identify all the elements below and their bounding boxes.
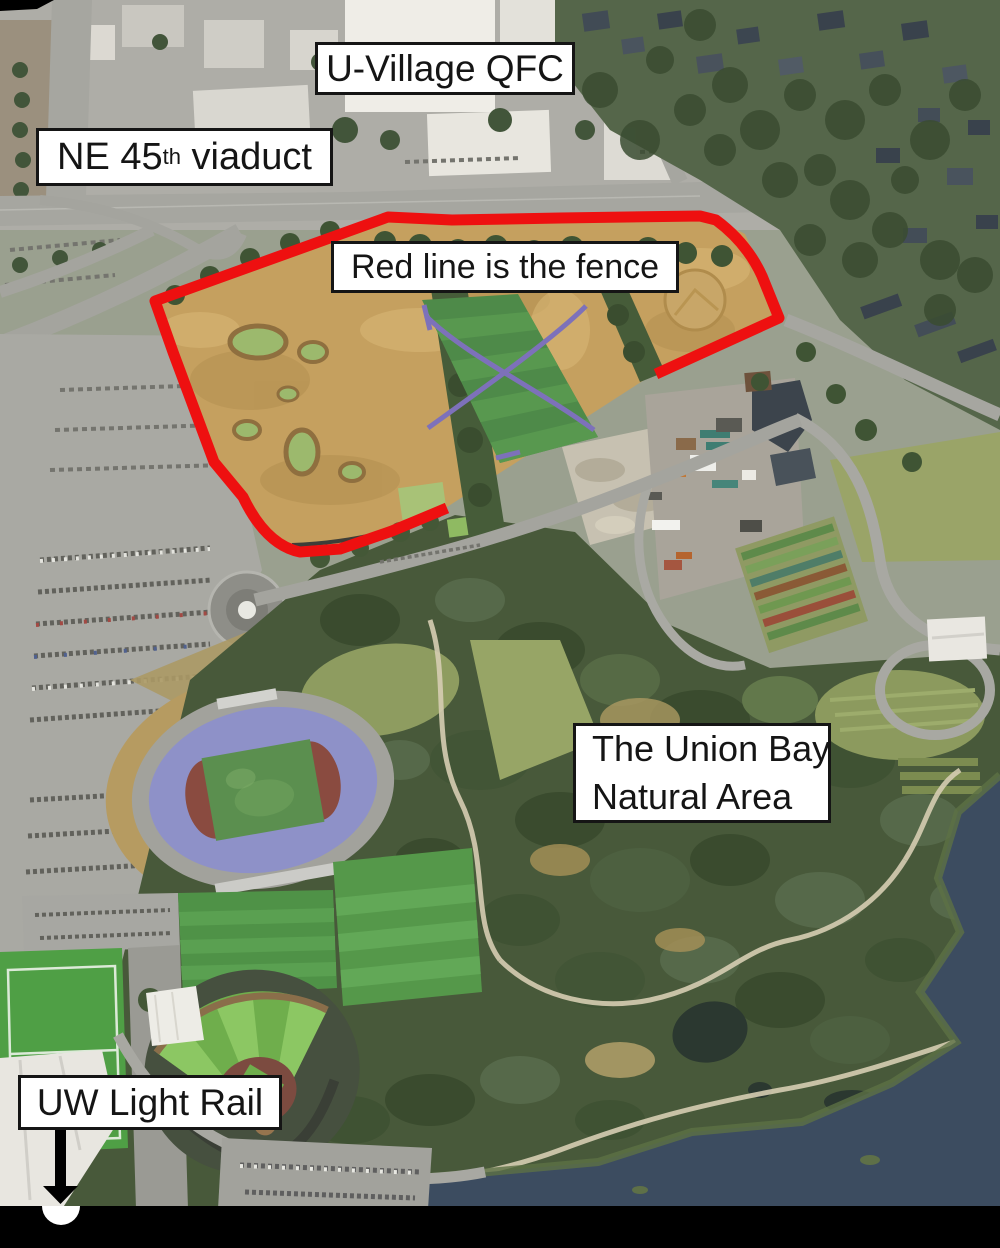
label-union-bay-natural-area: The Union Bay Natural Area [573,723,831,823]
letterbox-bar [0,1206,1000,1248]
label-uw-light-rail: UW Light Rail [18,1075,282,1130]
label-u-village-qfc-text: U-Village QFC [326,48,564,90]
label-ne-45th-viaduct: NE 45th viaduct [36,128,333,186]
label-red-line-fence-text: Red line is the fence [351,248,659,287]
label-uw-light-rail-text: UW Light Rail [37,1082,263,1124]
annotated-aerial-map: U-Village QFC NE 45th viaduct Red line i… [0,0,1000,1248]
aerial-imagery [0,0,1000,1248]
label-u-village-qfc: U-Village QFC [315,42,575,95]
label-red-line-fence: Red line is the fence [331,241,679,293]
